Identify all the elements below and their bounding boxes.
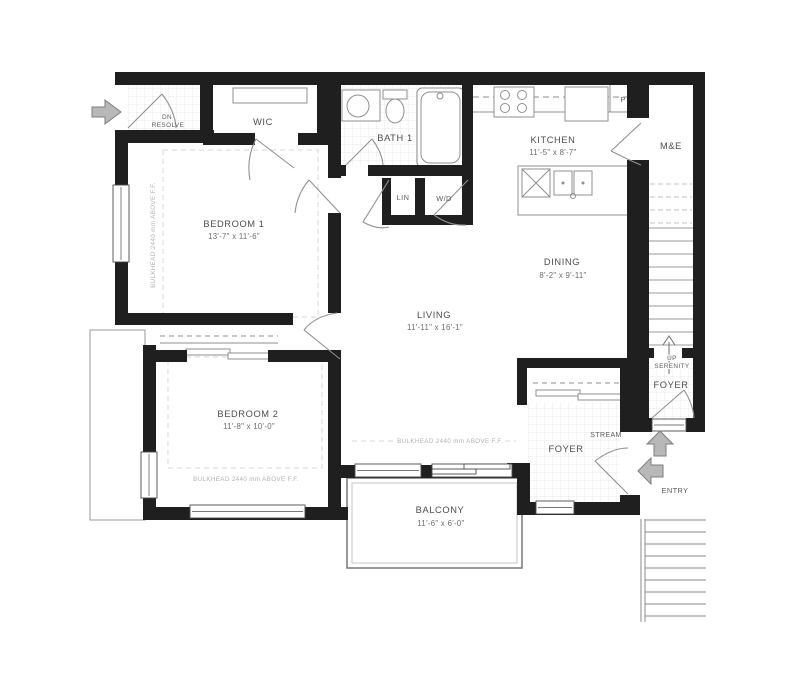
dining-label: DINING — [544, 257, 580, 267]
wic-door — [249, 139, 294, 180]
bedroom1-label: BEDROOM 1 — [203, 219, 264, 229]
balcony-dims: 11'-6" x 6'-0" — [417, 519, 464, 528]
foyer-upper-label: FOYER — [653, 380, 688, 390]
living-window — [355, 464, 421, 477]
bedroom2-side-window — [141, 452, 157, 498]
bulkhead-note-living: BULKHEAD 2440 mm ABOVE F.F. — [397, 438, 503, 445]
floor-plan-page: BEDROOM 1 13'-7" x 11'-6" BEDROOM 2 11'-… — [0, 0, 800, 696]
kitchen-dims: 11'-5" x 8'-7" — [529, 148, 576, 157]
floor-plan-drawing: BEDROOM 1 13'-7" x 11'-6" BEDROOM 2 11'-… — [0, 0, 800, 696]
bedroom1-window — [113, 185, 129, 262]
foyer-window — [536, 501, 574, 514]
bulkhead-note-bedroom2: BULKHEAD 2440 mm ABOVE F.F. — [193, 476, 299, 483]
bath1-label: BATH 1 — [377, 133, 412, 143]
up-unit-label: SERENITY — [654, 363, 689, 370]
linen-label: LIN — [397, 193, 410, 202]
balcony-sliding-door — [432, 464, 512, 477]
foyer-inner-label: FOYER — [548, 444, 583, 454]
dining-dims: 8'-2" x 9'-11" — [539, 271, 586, 280]
toilet-tank-icon — [383, 90, 407, 99]
up-label: UP — [667, 355, 677, 362]
me-label: M&E — [660, 141, 682, 151]
entry-left-arrow-icon — [638, 458, 663, 484]
bathtub-icon — [417, 88, 464, 167]
dn-entry-arrow-icon — [92, 100, 121, 124]
bulkhead-note-bedroom1: BULKHEAD 2440 mm ABOVE F.F. — [150, 182, 157, 288]
kitchen-island — [518, 166, 628, 215]
unit-name-label: STREAM — [590, 432, 622, 439]
laundry-label: W/D — [436, 194, 452, 203]
living-dims: 11'-11" x 16'-1" — [407, 323, 463, 332]
balcony-label: BALCONY — [416, 505, 465, 515]
bedroom1-door — [295, 180, 340, 213]
wic-label: WIC — [253, 117, 273, 127]
entry-label: ENTRY — [662, 486, 689, 495]
interior-stairs — [649, 184, 693, 374]
cooktop-icon — [494, 87, 534, 117]
wic-shelf — [233, 88, 307, 103]
living-label: LIVING — [417, 310, 451, 320]
me-door — [611, 123, 641, 165]
dn-unit-label: RESOLVE — [152, 122, 185, 129]
pantry-label: P — [620, 95, 625, 104]
bedroom2-dims: 11'-8" x 10'-0" — [223, 422, 275, 431]
bedroom1-dims: 13'-7" x 11'-6" — [208, 232, 260, 241]
bed2-closet-bypass-door — [186, 349, 230, 355]
entry-up-arrow-icon — [647, 431, 673, 456]
kitchen-label: KITCHEN — [530, 135, 575, 145]
exterior-patio-outline — [90, 330, 145, 520]
upper-foyer-door-threshold — [652, 419, 686, 431]
foyer-closet-bypass-door — [536, 390, 580, 396]
fridge-icon — [565, 87, 608, 121]
toilet-bowl-icon — [386, 99, 404, 123]
bedroom2-label: BEDROOM 2 — [217, 409, 278, 419]
bedroom2-bottom-window — [190, 505, 305, 518]
exterior-entry-stairs — [641, 519, 706, 622]
dn-label: DN — [162, 114, 172, 121]
